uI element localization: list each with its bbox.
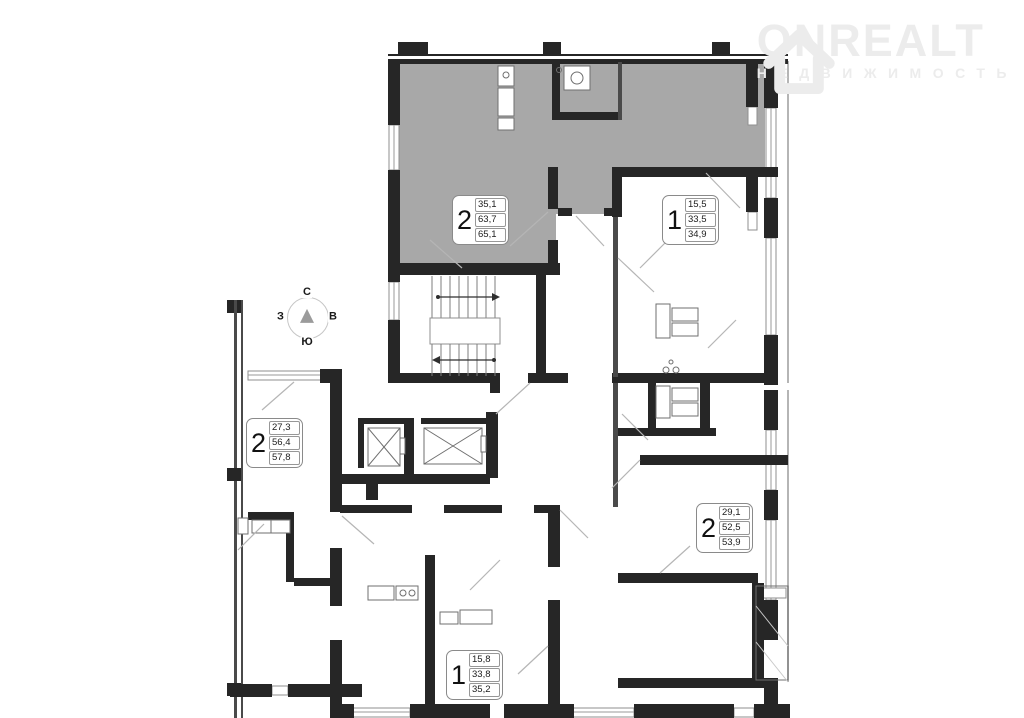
apartment-areas: 27,3 56,4 57,8 [269,421,300,465]
apartment-label-1room-bottom[interactable]: 1 15,8 33,8 35,2 [446,650,503,700]
floor-plan-page: 2 35,1 63,7 65,1 1 15,5 33,5 34,9 2 27,3… [0,0,1024,718]
apartment-areas: 29,1 52,5 53,9 [719,506,750,550]
apartment-label-1room-top-right[interactable]: 1 15,5 33,5 34,9 [662,195,719,245]
apartment-rooms-count: 2 [249,421,268,465]
compass-south-label: Ю [300,337,313,348]
apartment-label-2room-highlighted[interactable]: 2 35,1 63,7 65,1 [452,195,509,245]
staircase [430,276,500,376]
area-living: 29,1 [719,506,750,520]
floor-plan-drawing [0,0,1024,718]
area-total: 65,1 [475,228,506,242]
apartment-rooms-count: 1 [665,198,684,242]
compass-needle-icon [300,309,314,323]
apartment-label-2room-left[interactable]: 2 27,3 56,4 57,8 [246,418,303,468]
area-living: 27,3 [269,421,300,435]
compass-west-label: З [276,312,285,323]
apartment-areas: 15,8 33,8 35,2 [469,653,500,697]
area-total: 34,9 [685,228,716,242]
area-total: 53,9 [719,536,750,550]
area-living: 15,8 [469,653,500,667]
area-no-balcony: 33,8 [469,668,500,682]
area-total: 35,2 [469,683,500,697]
apartment-rooms-count: 2 [455,198,474,242]
apartment-label-2room-bottom-right[interactable]: 2 29,1 52,5 53,9 [696,503,753,553]
apartment-areas: 35,1 63,7 65,1 [475,198,506,242]
area-no-balcony: 52,5 [719,521,750,535]
area-total: 57,8 [269,451,300,465]
area-living: 35,1 [475,198,506,212]
apartment-rooms-count: 1 [449,653,468,697]
area-no-balcony: 63,7 [475,213,506,227]
compass-north-label: С [302,287,312,298]
apartment-rooms-count: 2 [699,506,718,550]
elevator-small [368,428,405,466]
area-no-balcony: 33,5 [685,213,716,227]
compass-rose: С Ю З В [283,293,331,341]
compass-east-label: В [328,312,338,323]
elevator-large [424,428,486,464]
apartment-areas: 15,5 33,5 34,9 [685,198,716,242]
area-no-balcony: 56,4 [269,436,300,450]
area-living: 15,5 [685,198,716,212]
